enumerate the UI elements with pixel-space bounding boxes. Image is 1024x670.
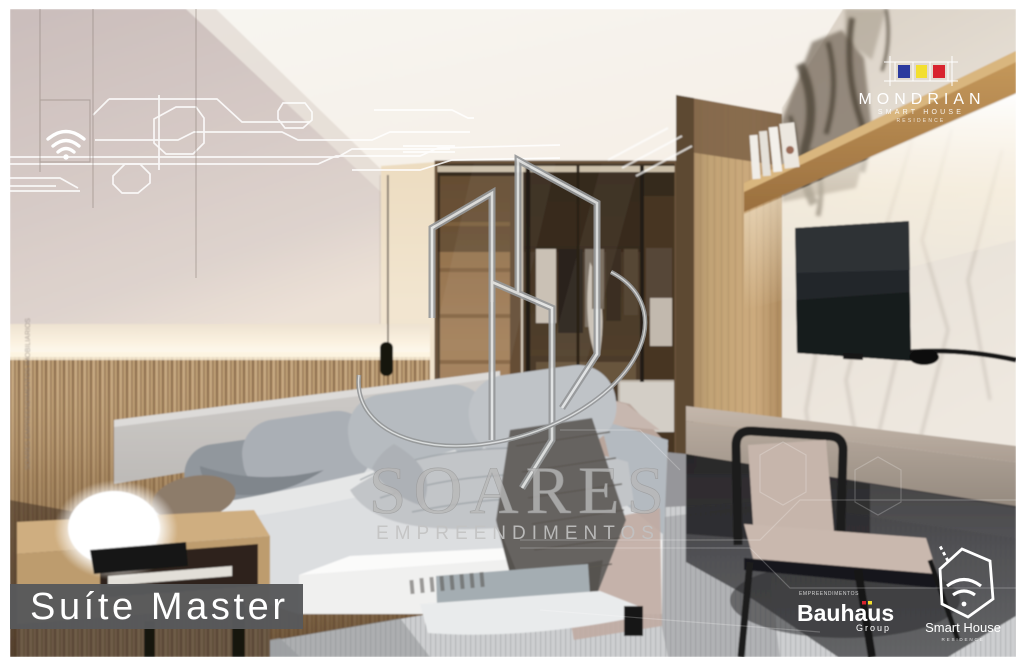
svg-text:RESIDENCE: RESIDENCE	[941, 637, 984, 642]
svg-text:SMART HOUSE: SMART HOUSE	[878, 109, 964, 116]
svg-text:EMPREENDIMENTOS: EMPREENDIMENTOS	[799, 591, 859, 597]
svg-text:Smart House: Smart House	[925, 620, 1001, 635]
svg-text:Suíte Master: Suíte Master	[30, 586, 289, 628]
svg-text:SOARES: SOARES	[369, 452, 672, 528]
svg-text:Group: Group	[856, 623, 891, 633]
svg-text:RESIDENCE: RESIDENCE	[897, 118, 946, 124]
svg-text:EMPREENDIMENTOS: EMPREENDIMENTOS	[376, 523, 660, 544]
svg-text:SOARES EMPREENDIMENTOS IMOBILI: SOARES EMPREENDIMENTOS IMOBILIARIOS	[25, 318, 32, 470]
svg-text:MONDRIAN: MONDRIAN	[858, 91, 985, 108]
